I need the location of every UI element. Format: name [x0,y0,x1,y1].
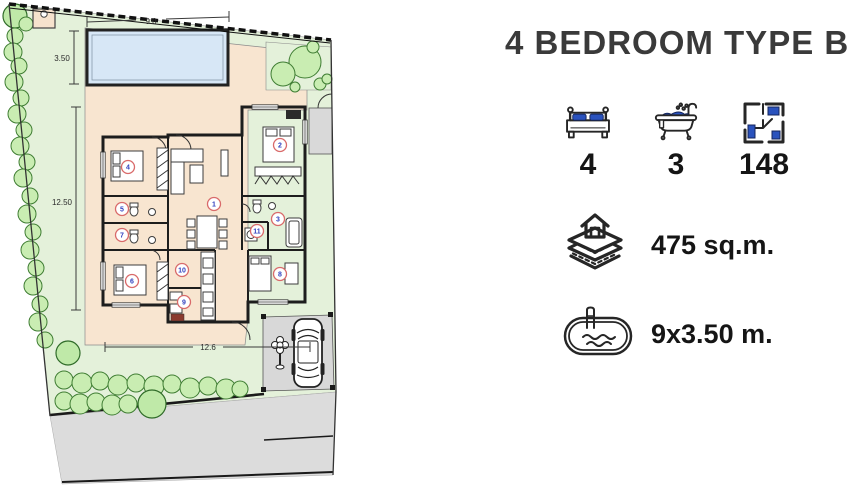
svg-text:9: 9 [182,300,186,307]
room-marker-8: 8 [274,268,287,281]
room-marker-3: 3 [272,213,285,226]
brochure-page: 1 2 3 4 5 6 7 8 9 10 11 9.0 [0,0,854,494]
land-plot-icon [563,210,627,281]
garden-bed [266,41,332,92]
stat-built-area: 148 [731,96,797,180]
svg-text:12.50: 12.50 [52,198,73,207]
room-marker-5: 5 [116,203,129,216]
pool-size-value: 9x3.50 m. [651,319,773,350]
page-title: 4 BEDROOM TYPE B [505,24,849,62]
svg-text:8: 8 [278,272,282,279]
svg-text:3: 3 [276,217,280,224]
svg-text:7: 7 [120,233,124,240]
bed-icon [563,96,613,146]
stats-row: 4 [555,96,797,180]
bedrooms-count: 4 [580,150,597,180]
svg-text:1: 1 [212,202,216,209]
room-marker-4: 4 [122,161,135,174]
stat-bedrooms: 4 [555,96,621,180]
site-plan: 1 2 3 4 5 6 7 8 9 10 11 9.0 [0,0,427,494]
stat-bathrooms: 3 [643,96,709,180]
tree [271,62,295,86]
room-marker-11: 11 [251,225,264,238]
svg-text:9.0: 9.0 [145,17,157,26]
svg-text:12.6: 12.6 [200,343,216,352]
room-marker-1: 1 [208,198,221,211]
room-marker-9: 9 [178,296,191,309]
room-marker-10: 10 [176,264,189,277]
land-area-value: 475 sq.m. [651,230,774,261]
pool-size-row: 9x3.50 m. [563,306,773,363]
pool-icon [563,306,633,363]
svg-text:6: 6 [130,279,134,286]
room-marker-7: 7 [116,229,129,242]
room-marker-2: 2 [274,139,287,152]
bathtub-icon [652,96,700,146]
land-area-row: 475 sq.m. [563,210,774,281]
svg-text:11: 11 [253,229,261,236]
svg-text:10: 10 [178,268,186,275]
room-marker-6: 6 [126,275,139,288]
bathrooms-count: 3 [668,150,685,180]
swimming-pool [87,30,228,85]
built-area-value: 148 [739,150,789,180]
svg-text:2: 2 [278,143,282,150]
car-icon [292,319,325,387]
svg-text:5: 5 [120,207,124,214]
svg-text:4: 4 [126,165,130,172]
svg-text:3.50: 3.50 [54,54,70,63]
floorplan-icon [741,96,787,146]
info-panel: 4 BEDROOM TYPE B [427,0,854,494]
